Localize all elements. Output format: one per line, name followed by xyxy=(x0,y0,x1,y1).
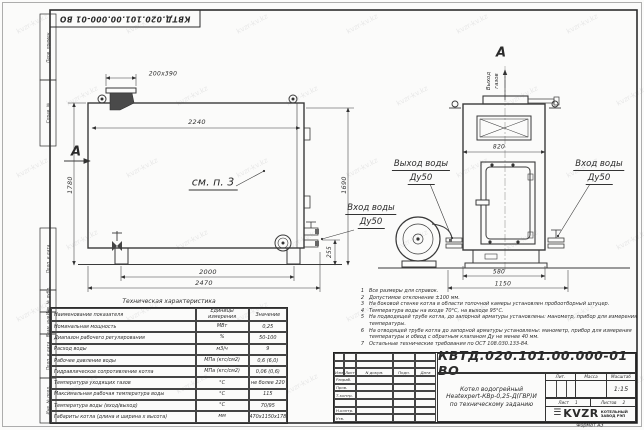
product-name-line: по техническому заданию xyxy=(450,401,533,409)
table-cell: 0,06 (0,6) xyxy=(249,366,287,377)
table-row: Гидравлическое сопротивление котлаМПа (к… xyxy=(51,366,287,377)
view-mark-a: А xyxy=(496,46,506,61)
format-label: Формат А3 xyxy=(576,424,603,429)
kvzr-logo-bars-icon: ☰ xyxy=(553,409,561,418)
table-row: Номинальная мощностьМВт0,25 xyxy=(51,321,287,332)
table-cell: 9 xyxy=(249,344,287,355)
dim-base-width: 580 xyxy=(493,269,505,276)
table-cell: Расход воды xyxy=(51,344,196,355)
title-block: ИзмЛистN докум.Подп.ДатаРазраб.Пров.Т.ко… xyxy=(333,352,637,423)
scale-value: 1:15 xyxy=(606,380,636,398)
signature-row: Т.контр. xyxy=(334,391,438,399)
revision-header-row: ИзмЛистN докум.Подп.Дата xyxy=(334,368,438,376)
technical-notes: 1Все размеры для справок.2Допустимое отк… xyxy=(356,288,638,347)
signature-row: Пров. xyxy=(334,384,438,392)
side-water-inlet-dn: Ду50 xyxy=(358,217,385,229)
table-cell: 0,25 xyxy=(249,321,287,332)
table-cell: Температура уходящих газов xyxy=(51,377,196,388)
dim-right-offset: 255 xyxy=(327,246,333,258)
frame-column-label: Перв. примен. xyxy=(46,31,51,62)
dim-height-right: 1690 xyxy=(340,176,348,194)
water-outlet-label: Выход воды xyxy=(392,159,450,171)
table-cell: 2470х1150х1780 xyxy=(249,411,287,422)
note-item: 7Остальные технические требования по ОСТ… xyxy=(356,341,638,348)
signature-row: Утв. xyxy=(334,414,438,422)
table-cell: 70/95 xyxy=(249,400,287,411)
signature-row: Разраб. xyxy=(334,376,438,384)
company-cell: ☰ KVZR КОТЕЛЬНЫЙ ЗАВОД РЭП xyxy=(545,406,636,422)
frame-column-label: Справ. № xyxy=(46,103,51,123)
product-name-line: Heatexpert-КВр-0,25-Д(ГВР)И xyxy=(446,393,537,401)
table-cell: не более 220 xyxy=(249,377,287,388)
table-cell: мм xyxy=(196,411,249,422)
flue-out-label: газов xyxy=(494,73,500,88)
table-cell: Габариты котла (длина и ширина х высота) xyxy=(51,411,196,422)
table-cell: Диапазон рабочего регулирования xyxy=(51,332,196,343)
table-cell: Температура воды (вход/выход) xyxy=(51,400,196,411)
table-cell: Значение xyxy=(249,308,287,321)
side-water-inlet-label: Вход воды xyxy=(345,203,396,215)
table-cell: Гидравлическое сопротивление котла xyxy=(51,366,196,377)
table-row: Максимальная рабочая температура воды°С1… xyxy=(51,389,287,400)
table-cell: °С xyxy=(196,400,249,411)
flue-out-label: Выход xyxy=(486,72,492,90)
note-item: 4Температура воды на входе 70°С, на выхо… xyxy=(356,308,638,315)
water-outlet-dn: Ду50 xyxy=(408,173,435,185)
title-block-signature-grid: ИзмЛистN докум.Подп.ДатаРазраб.Пров.Т.ко… xyxy=(334,353,438,422)
product-name-line: Котел водогрейный xyxy=(460,386,523,394)
drawing-sheet: kvzr-kv.kzkvzr-kv.kzkvzr-kv.kzkvzr-kv.kz… xyxy=(0,0,644,430)
table-cell: 0,6 (6,0) xyxy=(249,355,287,366)
table-cell: Максимальная рабочая температура воды xyxy=(51,389,196,400)
table-cell: °С xyxy=(196,377,249,388)
mass-value-cell xyxy=(575,380,607,398)
table-row: Габариты котла (длина и ширина х высота)… xyxy=(51,411,287,422)
table-cell: Наименование показателя xyxy=(51,308,196,321)
table-cell: МВт xyxy=(196,321,249,332)
top-stamp-doc-number: КВТД.020.101.00.000-01 ВО xyxy=(60,14,191,23)
table-row: Расход водым3/ч9 xyxy=(51,344,287,355)
table-cell: Рабочее давление воды xyxy=(51,355,196,366)
signature-row: Н.контр. xyxy=(334,407,438,415)
table-cell: МПа (кгс/см2) xyxy=(196,355,249,366)
dim-top-duct: 200х390 xyxy=(149,71,178,78)
table-row: Диапазон рабочего регулирования%50-100 xyxy=(51,332,287,343)
note-item: 1Все размеры для справок. xyxy=(356,288,638,295)
table-row: Температура воды (вход/выход)°С70/95 xyxy=(51,400,287,411)
table-cell: % xyxy=(196,332,249,343)
dim-overall-width: 2470 xyxy=(195,279,213,287)
title-block-doc-number-cell: КВТД.020.101.00.000-01 ВО xyxy=(437,353,636,373)
dim-bottom-width: 2000 xyxy=(199,268,217,276)
table-cell: МПа (кгс/см2) xyxy=(196,366,249,377)
table-cell: м3/ч xyxy=(196,344,249,355)
table-row: Рабочее давление водыМПа (кгс/см2)0,6 (6… xyxy=(51,355,287,366)
sheet-value: 1 xyxy=(575,400,578,405)
tech-characteristics-table: Техническая характеристика Наименование … xyxy=(50,296,288,424)
signature-row xyxy=(334,399,438,407)
section-mark-a: А xyxy=(71,145,81,160)
sheets-value: 2 xyxy=(622,400,625,405)
note-item: 5На подводящей трубе котла, до запорной … xyxy=(356,314,638,327)
table-cell: °С xyxy=(196,389,249,400)
table-cell: Номинальная мощность xyxy=(51,321,196,332)
dim-height-left: 1780 xyxy=(66,176,74,194)
note-item: 6На отводящей трубе котла до запорной ар… xyxy=(356,328,638,341)
tech-table-grid: Наименование показателяЕдиницы измерения… xyxy=(50,307,288,424)
table-cell: Единицы измерения xyxy=(196,308,249,321)
table-cell: 115 xyxy=(249,389,287,400)
dim-front-overall: 1150 xyxy=(495,281,511,288)
revision-blank-row xyxy=(334,361,438,369)
dim-front-width: 820 xyxy=(493,144,505,151)
kvzr-logo: KVZR xyxy=(563,407,598,420)
tech-table-header-row: Наименование показателяЕдиницы измерения… xyxy=(51,308,287,321)
note-item: 2Допустимое отклонение ±100 мм. xyxy=(356,295,638,302)
revision-blank-row xyxy=(334,353,438,361)
table-row: Температура уходящих газов°Сне более 220 xyxy=(51,377,287,388)
table-cell: 50-100 xyxy=(249,332,287,343)
dim-inner-width: 2240 xyxy=(188,118,206,126)
callout-see-item-3: см. п. 3 xyxy=(189,176,238,191)
water-inlet-dn: Ду50 xyxy=(586,173,613,185)
sheets-label: Листов xyxy=(601,400,617,405)
title-block-name-cell: Котел водогрейный Heatexpert-КВр-0,25-Д(… xyxy=(437,373,546,422)
frame-column-label: Подп. и дата xyxy=(46,245,51,274)
company-name: КОТЕЛЬНЫЙ ЗАВОД РЭП xyxy=(601,410,628,418)
note-item: 3На боковой стенке котла в области топоч… xyxy=(356,301,638,308)
sheet-label: Лист xyxy=(558,400,569,405)
tech-table-title: Техническая характеристика xyxy=(50,296,288,307)
lit-value-cell xyxy=(545,380,576,398)
water-inlet-label: Вход воды xyxy=(573,159,624,171)
